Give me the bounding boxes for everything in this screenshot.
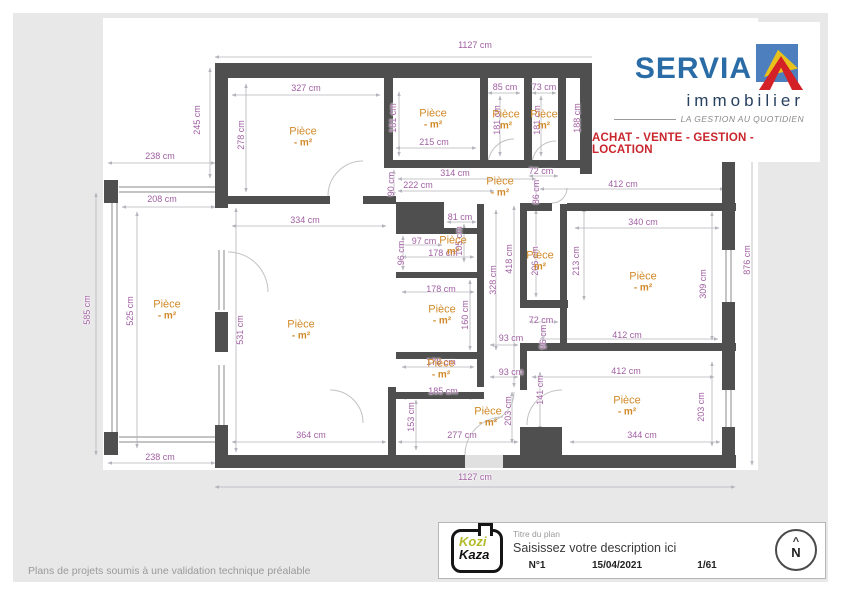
room-name: Pièce [526, 249, 554, 261]
dimension-label: 222 cm [403, 180, 433, 190]
compass-north-letter: N [777, 547, 815, 559]
room-area: - m² [629, 283, 657, 294]
dimension-label: 314 cm [440, 168, 470, 178]
dimension-label: 1127 cm [458, 40, 492, 50]
dimension-label: 418 cm [504, 244, 514, 274]
wall-segment [520, 343, 736, 351]
agency-logo-card: SERVIA immobilier LA GESTION AU QUOTIDIE… [592, 22, 820, 162]
dimension-label: 531 cm [235, 315, 245, 345]
wall-segment [480, 78, 488, 168]
dimension-label: 73 cm [532, 82, 557, 92]
room-area: - m² [419, 120, 447, 131]
dimension-label: 245 cm [192, 105, 202, 135]
room-label: Piècem² [526, 249, 554, 273]
dimension-label: 85 cm [493, 82, 518, 92]
room-label: Pièce- m² [289, 125, 317, 149]
dimension-label: 364 cm [296, 430, 326, 440]
room-name: Pièce [289, 125, 317, 137]
room-area: - m² [428, 316, 456, 327]
balcony-corner-post [104, 432, 118, 455]
dimension-label: 178 cm [426, 284, 456, 294]
room-area: - m² [289, 138, 317, 149]
room-area: - m² [427, 370, 455, 381]
wall-segment [396, 202, 444, 228]
door-swing-arc [330, 390, 363, 423]
dimension-label: 215 cm [419, 137, 449, 147]
room-area: m² [439, 247, 467, 258]
wall-segment [215, 78, 228, 208]
room-name: Pièce [474, 405, 502, 417]
dimension-label: 93 cm [499, 367, 524, 377]
door-swing-arc [328, 161, 363, 196]
dimension-label: 86 cm [531, 180, 541, 205]
room-area: - m² [486, 188, 514, 199]
dimension-label: 412 cm [608, 179, 638, 189]
dimension-label: 153 cm [406, 402, 416, 432]
plan-page-count: 1/61 [697, 560, 716, 571]
entry-threshold [465, 455, 503, 468]
roof-logo-icon [754, 44, 804, 90]
wall-segment [503, 455, 736, 468]
room-name: Pièce [419, 107, 447, 119]
dimension-label: 412 cm [612, 330, 642, 340]
room-area: - m² [613, 407, 641, 418]
kozikaza-logo: Kozi Kaza [451, 529, 503, 573]
dimension-label: 328 cm [488, 265, 498, 295]
wall-segment [388, 387, 396, 455]
door-swing-arc [228, 252, 268, 292]
room-label: Pièce- m² [427, 357, 455, 381]
wall-segment [567, 203, 736, 211]
dimension-label: 181 cm [388, 103, 398, 133]
dimension-label: 93 cm [499, 333, 524, 343]
dimension-label: 876 cm [742, 245, 752, 275]
brand-subtitle: immobilier [687, 92, 804, 109]
room-label: Pièce- m² [153, 298, 181, 322]
room-name: Pièce [492, 108, 520, 120]
dimension-label: 277 cm [447, 430, 477, 440]
compass-north-indicator[interactable]: ^ N [775, 529, 817, 571]
door-swing-arc [552, 188, 567, 203]
brand-name: SERVIA [635, 54, 752, 84]
room-name: Pièce [629, 270, 657, 282]
brand-row: SERVIA [635, 44, 804, 90]
wall-segment [528, 427, 562, 455]
room-area: - m² [474, 418, 502, 429]
dimension-label: 185 cm [428, 386, 458, 396]
validation-disclaimer: Plans de projets soumis à une validation… [28, 565, 311, 577]
dimension-label: 585 cm [82, 295, 92, 325]
room-label: Pièce- m² [419, 107, 447, 131]
floorplan-page: 1127 cm245 cm238 cm208 cm327 cm278 cm181… [0, 0, 841, 595]
wall-segment [520, 427, 528, 455]
dimension-label: 160 cm [460, 300, 470, 330]
wall-segment [363, 196, 396, 204]
room-name: Pièce [427, 357, 455, 369]
dimension-label: 334 cm [290, 215, 320, 225]
plan-title-label: Titre du plan [513, 529, 560, 539]
room-label: Piècem² [439, 234, 467, 258]
wall-segment [477, 204, 484, 387]
dimension-label: 81 cm [448, 212, 473, 222]
wall-segment [396, 272, 484, 278]
room-area: - m² [153, 311, 181, 322]
dimension-label: 327 cm [291, 83, 321, 93]
wall-segment [560, 308, 567, 343]
wall-segment [560, 204, 567, 308]
dimension-label: 213 cm [571, 246, 581, 276]
plan-title-bar: Kozi Kaza Titre du plan Saisissez votre … [438, 522, 826, 579]
room-name: Pièce [486, 175, 514, 187]
room-label: Pièce- m² [486, 175, 514, 199]
dimension-label: 203 cm [503, 396, 513, 426]
dimension-label: 203 cm [696, 392, 706, 422]
wall-segment [215, 455, 465, 468]
room-area: - m² [287, 331, 315, 342]
dimension-label: 525 cm [125, 296, 135, 326]
dimension-label: 278 cm [236, 120, 246, 150]
room-name: Pièce [530, 108, 558, 120]
plan-description-field[interactable]: Saisissez votre description ici [513, 541, 676, 555]
room-label: Pièce- m² [428, 303, 456, 327]
room-name: Pièce [153, 298, 181, 310]
room-name: Pièce [428, 303, 456, 315]
dimension-label: 344 cm [627, 430, 657, 440]
dimension-label: 141 cm [535, 375, 545, 405]
kaza-text: Kaza [459, 548, 500, 561]
kozikaza-chimney-icon [478, 523, 493, 536]
balcony-corner-post [104, 180, 118, 203]
room-area: m² [526, 262, 554, 273]
room-name: Pièce [287, 318, 315, 330]
dimension-label: 96 cm [538, 325, 548, 350]
dimension-label: 97 cm [412, 236, 437, 246]
dimension-label: 309 cm [698, 269, 708, 299]
room-label: Pièce- m² [613, 394, 641, 418]
room-name: Pièce [613, 394, 641, 406]
wall-segment [520, 300, 568, 308]
brand-tagline: LA GESTION AU QUOTIDIEN [681, 114, 804, 124]
tagline-rule [614, 119, 676, 120]
dimension-label: 72 cm [529, 166, 554, 176]
dimension-label: 96 cm [396, 241, 406, 266]
room-label: Piècem² [530, 108, 558, 132]
room-area: m² [492, 121, 520, 132]
dimension-label: 412 cm [611, 366, 641, 376]
services-banner: ACHAT - VENTE - GESTION - LOCATION [592, 132, 804, 156]
room-label: Pièce- m² [474, 405, 502, 429]
room-label: Piècem² [492, 108, 520, 132]
dimension-label: 90 cm [386, 172, 396, 197]
wall-segment [396, 228, 478, 234]
wall-segment [384, 160, 592, 168]
plan-number: N°1 [529, 560, 546, 571]
wall-segment [228, 196, 330, 204]
dimension-label: 1127 cm [458, 472, 492, 482]
dimension-label: 340 cm [628, 217, 658, 227]
plan-date: 15/04/2021 [592, 560, 642, 571]
room-label: Pièce- m² [287, 318, 315, 342]
wall-segment [558, 78, 566, 168]
wall-segment [215, 312, 228, 352]
dimension-label: 238 cm [145, 452, 175, 462]
room-name: Pièce [439, 234, 467, 246]
dimension-label: 238 cm [145, 151, 175, 161]
dimension-label: 208 cm [147, 194, 177, 204]
room-label: Pièce- m² [629, 270, 657, 294]
tagline-row: LA GESTION AU QUOTIDIEN [614, 114, 804, 124]
dimension-label: 188 cm [572, 103, 582, 133]
room-area: m² [530, 121, 558, 132]
